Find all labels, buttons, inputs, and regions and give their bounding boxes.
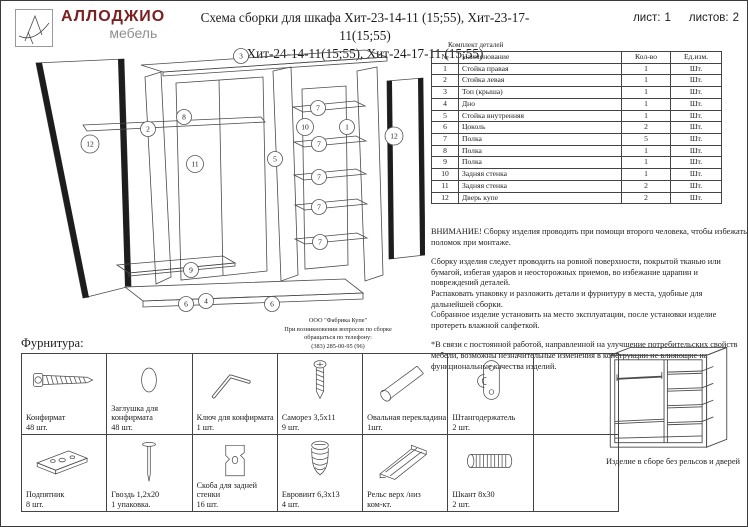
part-unit: Шт. xyxy=(671,98,722,110)
dowel-icon xyxy=(448,437,532,485)
callout-2: 2 xyxy=(141,122,156,137)
callout-7-5: 7 xyxy=(313,235,328,250)
svg-text:5: 5 xyxy=(273,155,277,164)
part-name: Дверь купе xyxy=(459,192,622,204)
hardware-item-name: Гвоздь 1,2х20 xyxy=(111,490,159,499)
svg-text:7: 7 xyxy=(316,104,320,113)
screw-icon xyxy=(278,356,362,404)
part-number: 4 xyxy=(432,98,459,110)
part-name: Дно xyxy=(459,98,622,110)
hardware-grid: Конфирмат48 шт. Заглушка для конфирмата4… xyxy=(21,353,619,512)
callout-12-right: 12 xyxy=(385,127,403,145)
hardware-item-qty: 2 шт. xyxy=(452,423,515,432)
stylized-a-logo-icon xyxy=(15,9,53,47)
top-board-part xyxy=(141,50,387,76)
part-number: 10 xyxy=(432,169,459,181)
part-name: Стойка правая xyxy=(459,63,622,75)
sheet-info: лист:1листов:2 xyxy=(629,12,739,24)
confirmat-screw-icon xyxy=(22,356,106,404)
parts-table: № Наименование Кол-во Ед.изм. 1Стойка пр… xyxy=(431,51,722,204)
svg-text:7: 7 xyxy=(317,140,321,149)
hardware-item-qty: 8 шт. xyxy=(26,500,64,509)
callout-6-right: 6 xyxy=(265,297,280,312)
brand-subtitle: мебель xyxy=(109,26,157,41)
svg-text:2: 2 xyxy=(146,125,150,134)
part-name: Стойка внутренняя xyxy=(459,110,622,122)
part-number: 8 xyxy=(432,145,459,157)
hardware-item-dowel: Шкант 8х302 шт. xyxy=(448,435,533,512)
notice-paragraph-3: Собранное изделие установить на место эк… xyxy=(431,310,747,331)
inner-stand-part xyxy=(273,67,298,281)
part-name: Цоколь xyxy=(459,122,622,134)
euro-screw-icon xyxy=(278,437,362,485)
part-qty: 1 xyxy=(622,157,671,169)
parts-table-row: 1Стойка правая1Шт. xyxy=(432,63,722,75)
factory-note-2: обращаться по телефону: xyxy=(253,334,423,343)
part-unit: Шт. xyxy=(671,87,722,99)
parts-table-row: 4Дно1Шт. xyxy=(432,98,722,110)
hardware-item-rail-profile: Рельс верх /низком-кт. xyxy=(363,435,448,512)
svg-text:6: 6 xyxy=(184,300,188,309)
svg-text:12: 12 xyxy=(86,140,94,149)
svg-text:11: 11 xyxy=(191,160,198,169)
hardware-item-name: Саморез 3,5х11 xyxy=(282,413,336,422)
part-unit: Шт. xyxy=(671,180,722,192)
rail-holder-icon xyxy=(448,356,532,404)
hardware-item-oval-rail: Овальная перекладина1шт. xyxy=(363,354,448,435)
hardware-heading: Фурнитура: xyxy=(21,336,84,351)
parts-table-row: 10Задняя стенка1Шт. xyxy=(432,169,722,181)
svg-text:7: 7 xyxy=(318,238,322,247)
part-name: Задняя стенка xyxy=(459,169,622,181)
assembly-sheet: АЛЛОДЖИО мебель Схема сборки для шкафа Х… xyxy=(0,0,748,527)
hardware-item-euro-screw: Евровинт 6,3х134 шт. xyxy=(278,435,363,512)
hardware-item-qty: 1 шт. xyxy=(197,423,274,432)
oval-rail-icon xyxy=(363,356,447,404)
part-unit: Шт. xyxy=(671,122,722,134)
part-unit: Шт. xyxy=(671,192,722,204)
svg-text:6: 6 xyxy=(270,300,274,309)
callout-1: 1 xyxy=(340,120,355,135)
callout-7-4: 7 xyxy=(312,200,327,215)
title-line-1: Схема сборки для шкафа Хит-23-14-11 (15;… xyxy=(179,9,551,45)
part-unit: Шт. xyxy=(671,145,722,157)
hardware-item-cap: Заглушка для конфирмата48 шт. xyxy=(107,354,192,435)
hardware-item-qty: 16 шт. xyxy=(197,500,277,509)
part-name: Стойка левая xyxy=(459,75,622,87)
sheets-label: листов: xyxy=(689,12,729,24)
callout-3: 3 xyxy=(234,49,249,64)
svg-text:12: 12 xyxy=(390,132,398,141)
hardware-item-qty: ком-кт. xyxy=(367,500,421,509)
hardware-item-qty: 2 шт. xyxy=(452,500,494,509)
hardware-item-qty: 48 шт. xyxy=(111,423,191,432)
part-number: 1 xyxy=(432,63,459,75)
assembled-wardrobe-drawing xyxy=(599,343,747,455)
hardware-item-qty: 9 шт. xyxy=(282,423,336,432)
bottom-board-part xyxy=(125,279,363,307)
col-name: Наименование xyxy=(459,52,622,64)
part-name: Полка xyxy=(459,145,622,157)
hardware-item-name: Подпятник xyxy=(26,490,64,499)
part-qty: 1 xyxy=(622,110,671,122)
exploded-view-diagram: 3 12 2 8 11 9 5 10 1 12 7 7 7 7 7 6 4 6 xyxy=(13,47,425,322)
callout-11: 11 xyxy=(187,156,204,173)
assembled-product: Изделие в сборе без рельсов и дверей xyxy=(599,343,747,466)
col-unit: Ед.изм. xyxy=(671,52,722,64)
part-name: Полка xyxy=(459,134,622,146)
part-name: Задняя стенка xyxy=(459,180,622,192)
left-door-part xyxy=(36,59,131,298)
parts-table-row: 11Задняя стенка2Шт. xyxy=(432,180,722,192)
hardware-item-rail-holder: Штангодержатель2 шт. xyxy=(448,354,533,435)
callout-7-3: 7 xyxy=(312,170,327,185)
part-name: Полка xyxy=(459,157,622,169)
part-number: 11 xyxy=(432,180,459,192)
hardware-item-qty: 1 упаковка. xyxy=(111,500,159,509)
parts-table-row: 6Цоколь2Шт. xyxy=(432,122,722,134)
parts-table-header: № Наименование Кол-во Ед.изм. xyxy=(432,52,722,64)
left-stand-part xyxy=(145,72,171,284)
sheet-label: лист: xyxy=(633,12,660,24)
hardware-item-confirmat: Конфирмат48 шт. xyxy=(22,354,107,435)
svg-text:3: 3 xyxy=(239,52,243,61)
back-wall-bracket-icon xyxy=(193,437,277,485)
hanging-shelf-part xyxy=(83,117,265,131)
part-unit: Шт. xyxy=(671,134,722,146)
callout-10: 10 xyxy=(297,119,314,136)
part-number: 2 xyxy=(432,75,459,87)
part-qty: 5 xyxy=(622,134,671,146)
right-stand-part xyxy=(357,67,383,281)
lower-shelf-part xyxy=(117,256,235,276)
factory-note-1: При возникновении вопросов по сборке xyxy=(253,326,423,335)
parts-table-row: 9Полка1Шт. xyxy=(432,157,722,169)
hardware-item-name: Рельс верх /низ xyxy=(367,490,421,499)
part-qty: 1 xyxy=(622,145,671,157)
parts-table-row: 12Дверь купе2Шт. xyxy=(432,192,722,204)
factory-phone: (383) 285-00-95 (96) xyxy=(253,343,423,352)
col-qty: Кол-во xyxy=(622,52,671,64)
part-unit: Шт. xyxy=(671,157,722,169)
part-qty: 2 xyxy=(622,180,671,192)
part-unit: Шт. xyxy=(671,110,722,122)
sheet-number: 1 xyxy=(664,12,670,24)
parts-table-row: 5Стойка внутренняя1Шт. xyxy=(432,110,722,122)
part-number: 6 xyxy=(432,122,459,134)
parts-table-row: 3Топ (крыша)1Шт. xyxy=(432,87,722,99)
rail-profile-icon xyxy=(363,437,447,485)
cap-icon xyxy=(107,356,191,404)
part-unit: Шт. xyxy=(671,169,722,181)
parts-table-row: 8Полка1Шт. xyxy=(432,145,722,157)
hardware-item-qty: 48 шт. xyxy=(26,423,65,432)
hardware-item-name: Заглушка для конфирмата xyxy=(111,404,191,423)
part-unit: Шт. xyxy=(671,75,722,87)
hardware-item-name: Ключ для конфирмата xyxy=(197,413,274,422)
hardware-item-name: Штангодержатель xyxy=(452,413,515,422)
part-number: 3 xyxy=(432,87,459,99)
svg-text:7: 7 xyxy=(317,173,321,182)
parts-table-row: 2Стойка левая1Шт. xyxy=(432,75,722,87)
hex-key-icon xyxy=(193,356,277,404)
hardware-item-back-wall-bracket: Скоба для задней стенки16 шт. xyxy=(193,435,278,512)
nail-icon xyxy=(107,437,191,485)
right-door-part xyxy=(387,78,425,259)
hardware-item-screw: Саморез 3,5х119 шт. xyxy=(278,354,363,435)
brand-name: АЛЛОДЖИО xyxy=(61,9,165,26)
part-qty: 2 xyxy=(622,122,671,134)
brand-logo: АЛЛОДЖИО мебель xyxy=(15,9,165,47)
svg-text:9: 9 xyxy=(189,266,193,275)
part-unit: Шт. xyxy=(671,63,722,75)
sheets-total: 2 xyxy=(733,12,739,24)
hardware-item-hex-key: Ключ для конфирмата1 шт. xyxy=(193,354,278,435)
svg-text:7: 7 xyxy=(317,203,321,212)
part-number: 12 xyxy=(432,192,459,204)
notice-paragraph-1: Сборку изделия следует проводить на ровн… xyxy=(431,257,747,289)
part-qty: 1 xyxy=(622,63,671,75)
hardware-item-name: Конфирмат xyxy=(26,413,65,422)
svg-text:4: 4 xyxy=(204,297,208,306)
warning-text: ВНИМАНИЕ! Сборку изделия проводить при п… xyxy=(431,227,747,248)
svg-text:1: 1 xyxy=(345,123,349,132)
callout-8: 8 xyxy=(177,110,192,125)
hardware-item-name: Скоба для задней стенки xyxy=(197,481,277,500)
callout-12-left: 12 xyxy=(81,135,99,153)
callout-9: 9 xyxy=(184,263,199,278)
col-number: № xyxy=(432,52,459,64)
hardware-item-name: Евровинт 6,3х13 xyxy=(282,490,340,499)
svg-text:10: 10 xyxy=(301,123,309,132)
part-qty: 1 xyxy=(622,98,671,110)
parts-table-caption: Комплект деталей xyxy=(448,41,503,49)
part-qty: 1 xyxy=(622,169,671,181)
hardware-item-qty: 1шт. xyxy=(367,423,446,432)
callout-6-left: 6 xyxy=(179,297,194,312)
hardware-item-nail: Гвоздь 1,2х201 упаковка. xyxy=(107,435,192,512)
callout-5: 5 xyxy=(268,152,283,167)
foot-pad-icon xyxy=(22,437,106,485)
svg-text:8: 8 xyxy=(182,113,186,122)
hardware-item-name: Шкант 8х30 xyxy=(452,490,494,499)
part-qty: 1 xyxy=(622,87,671,99)
back-panel-left-part xyxy=(176,77,267,280)
part-qty: 2 xyxy=(622,192,671,204)
factory-contact: ООО "Фабрика Купе" При возникновении воп… xyxy=(253,317,423,351)
callout-7-1: 7 xyxy=(311,101,326,116)
parts-table-row: 7Полка5Шт. xyxy=(432,134,722,146)
hardware-item-name: Овальная перекладина xyxy=(367,413,446,422)
hardware-item-foot-pad: Подпятник8 шт. xyxy=(22,435,107,512)
assembled-product-caption: Изделие в сборе без рельсов и дверей xyxy=(599,457,747,466)
hardware-item-qty: 4 шт. xyxy=(282,500,340,509)
part-qty: 1 xyxy=(622,75,671,87)
part-number: 7 xyxy=(432,134,459,146)
notice-paragraph-2: Распаковать упаковку и разложить детали … xyxy=(431,289,747,310)
callout-4: 4 xyxy=(199,294,214,309)
part-name: Топ (крыша) xyxy=(459,87,622,99)
part-number: 5 xyxy=(432,110,459,122)
callout-7-2: 7 xyxy=(312,137,327,152)
part-number: 9 xyxy=(432,157,459,169)
